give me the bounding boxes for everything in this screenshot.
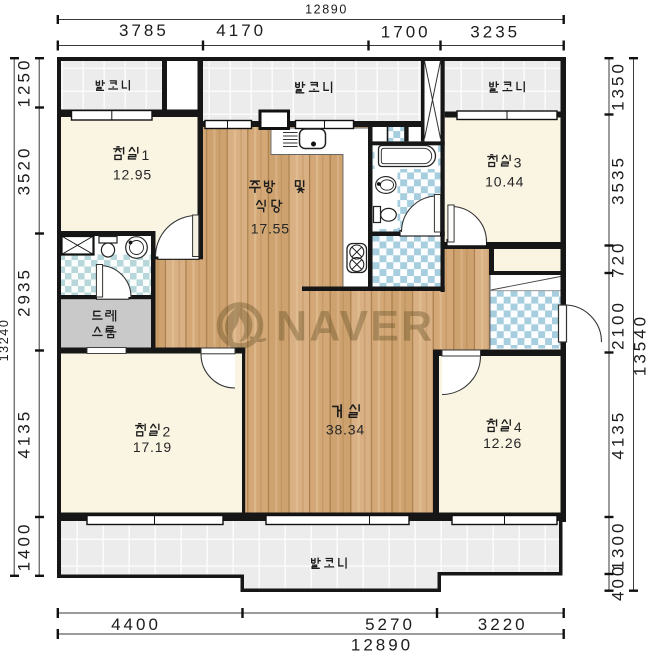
svg-text:17.19: 17.19 xyxy=(133,439,172,455)
svg-text:3520: 3520 xyxy=(15,146,34,196)
svg-text:2935: 2935 xyxy=(15,267,34,317)
svg-text:4: 4 xyxy=(514,419,523,435)
svg-text:38.34: 38.34 xyxy=(326,421,365,437)
svg-text:1350: 1350 xyxy=(609,61,628,111)
svg-text:4400: 4400 xyxy=(111,615,161,634)
svg-text:1400: 1400 xyxy=(15,522,34,572)
svg-text:12.26: 12.26 xyxy=(483,435,522,451)
svg-text:12890: 12890 xyxy=(305,3,348,17)
svg-text:13540: 13540 xyxy=(631,314,650,376)
svg-text:3: 3 xyxy=(514,154,523,170)
svg-text:4135: 4135 xyxy=(15,409,34,459)
svg-text:13240: 13240 xyxy=(0,319,11,362)
svg-text:3535: 3535 xyxy=(609,155,628,205)
svg-text:5270: 5270 xyxy=(365,615,415,634)
svg-text:12.95: 12.95 xyxy=(113,166,152,182)
svg-text:4135: 4135 xyxy=(609,410,628,460)
svg-text:17.55: 17.55 xyxy=(251,220,290,236)
svg-text:2100: 2100 xyxy=(609,300,628,350)
svg-text:1300: 1300 xyxy=(609,521,628,571)
svg-text:NAVER: NAVER xyxy=(276,303,434,351)
svg-text:400: 400 xyxy=(609,564,628,601)
svg-text:1: 1 xyxy=(142,147,151,163)
svg-text:4170: 4170 xyxy=(216,21,266,40)
svg-text:3220: 3220 xyxy=(478,615,528,634)
svg-text:720: 720 xyxy=(609,241,628,278)
svg-text:2: 2 xyxy=(163,423,172,439)
svg-text:1700: 1700 xyxy=(381,23,431,42)
svg-text:1250: 1250 xyxy=(15,58,34,108)
svg-text:3235: 3235 xyxy=(470,23,520,42)
svg-text:3785: 3785 xyxy=(119,21,169,40)
svg-text:10.44: 10.44 xyxy=(485,174,524,190)
svg-text:12890: 12890 xyxy=(351,636,413,653)
